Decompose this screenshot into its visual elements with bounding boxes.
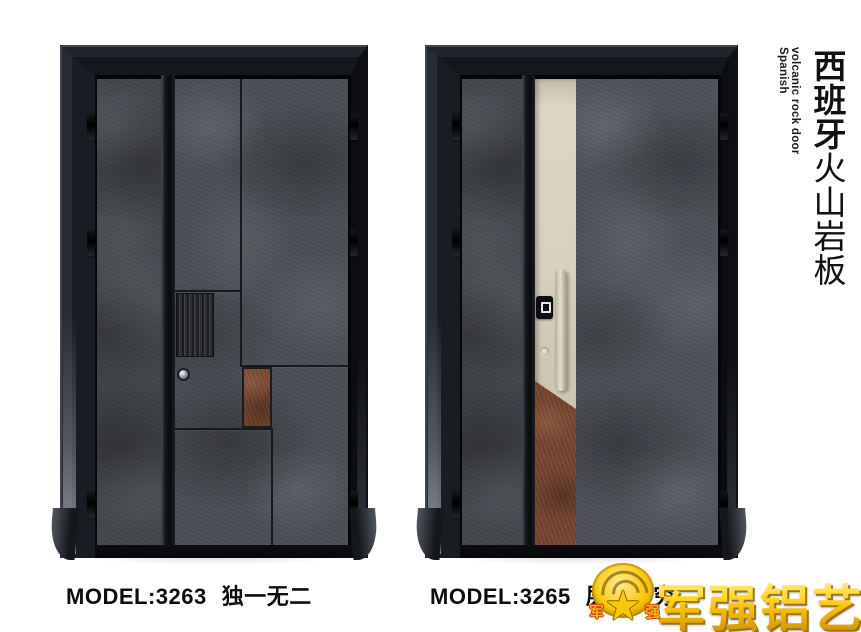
hinge: [452, 491, 460, 518]
poster-canvas: MODEL:3263独一无二 MODEL:3265层出不穷 Spanish vo…: [0, 0, 861, 632]
model-number: MODEL:3265: [430, 584, 571, 609]
smart-lock: [536, 296, 553, 319]
hinge: [87, 229, 95, 256]
door-leaf-narrow: [97, 79, 161, 545]
frame-foot: [719, 508, 750, 560]
door-image-3265: [425, 45, 738, 558]
frame-left-highlight: [60, 47, 62, 508]
door-opening: [460, 75, 721, 558]
frame-left-highlight: [425, 47, 427, 508]
hinge: [720, 113, 728, 140]
side-title-en-line1: Spanish: [777, 47, 789, 94]
brand-emblem: ★ 军 强: [592, 563, 654, 629]
door-bottom-rail: [95, 545, 351, 558]
ribbed-accent-panel: [176, 293, 214, 357]
brand-name: 军强铝艺: [656, 569, 861, 632]
emblem-char-left: 军: [589, 601, 604, 622]
champagne-accent-strip: [535, 79, 576, 545]
door-leaf-narrow: [462, 79, 522, 545]
lock-cylinder: [179, 370, 188, 379]
hinge: [87, 491, 95, 518]
door-leaf-main: [175, 79, 348, 545]
side-title-zh-primary: 西班牙: [809, 49, 846, 151]
door-opening: [95, 75, 351, 558]
hinge: [720, 229, 728, 256]
hinge: [87, 113, 95, 140]
star-icon: ★: [604, 585, 642, 627]
rust-accent-panel: [242, 367, 272, 428]
door-handle-bar: [161, 75, 175, 555]
rust-accent-panel: [535, 381, 576, 545]
model-tagline: 独一无二: [222, 584, 312, 609]
hinge: [452, 229, 460, 256]
frame-foot: [48, 508, 79, 560]
door-bottom-rail: [460, 545, 721, 558]
hinge: [452, 113, 460, 140]
frame-foot: [413, 508, 444, 560]
side-title-zh-secondary: 火山岩板: [809, 151, 846, 287]
door-leaf-main: [576, 79, 718, 545]
panel-seam: [271, 430, 273, 545]
panel-seam: [240, 79, 242, 366]
pull-handle-rod: [555, 269, 567, 391]
frame-top-highlight: [61, 45, 367, 47]
panel-seam: [175, 428, 273, 430]
model-number: MODEL:3263: [66, 584, 207, 609]
hinge: [350, 113, 358, 140]
door-handle-bar: [522, 75, 535, 555]
model-label-3263: MODEL:3263独一无二: [66, 579, 312, 611]
frame-foot: [349, 508, 380, 560]
frame-top-highlight: [426, 45, 737, 47]
side-title-en-line2: volcanic rock door: [789, 47, 801, 155]
side-title-zh: 西班牙火山岩板: [805, 49, 849, 287]
door-image-3263: [60, 45, 368, 558]
panel-seam: [175, 290, 241, 292]
emblem-char-right: 强: [645, 601, 660, 622]
hinge: [350, 229, 358, 256]
flush-pull: [540, 347, 549, 356]
